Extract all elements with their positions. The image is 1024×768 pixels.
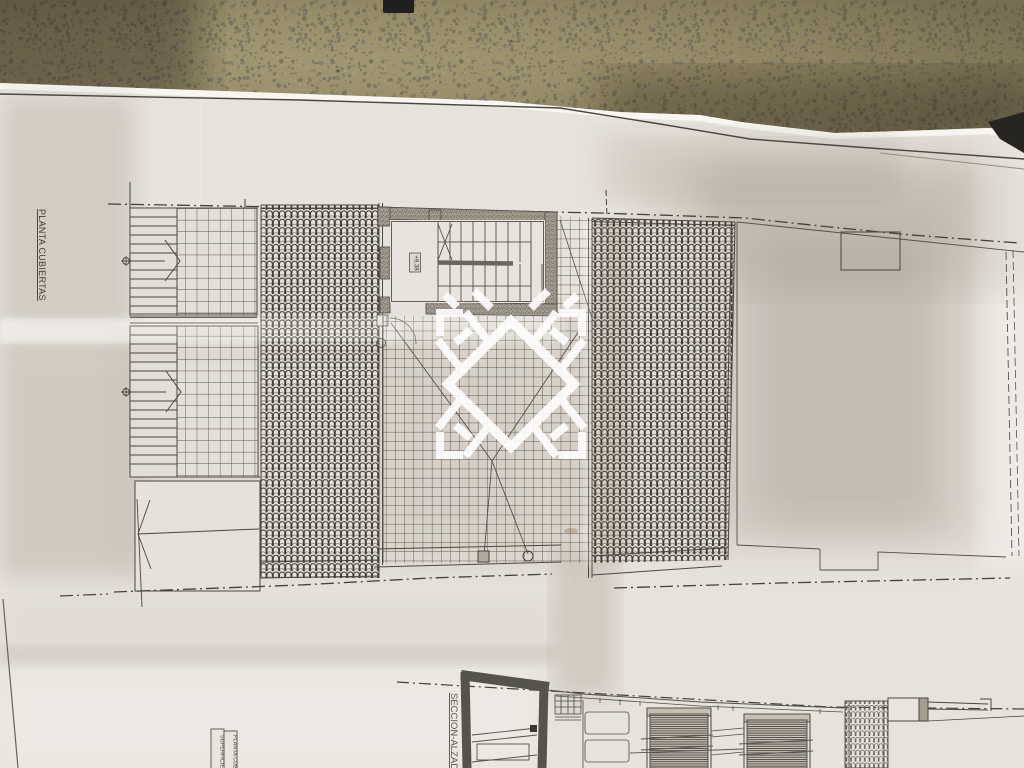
svg-text:+9.38: +9.38 — [413, 255, 419, 271]
svg-text:PLANTA CUBIERTAS: PLANTA CUBIERTAS — [37, 209, 47, 301]
svg-text:PLANTA CUBIE: PLANTA CUBIE — [232, 735, 238, 768]
svg-text:SECCION-ALZADO POST: SECCION-ALZADO POST — [448, 693, 459, 768]
svg-text:SUPERFICIE C: SUPERFICIE C — [219, 735, 225, 768]
